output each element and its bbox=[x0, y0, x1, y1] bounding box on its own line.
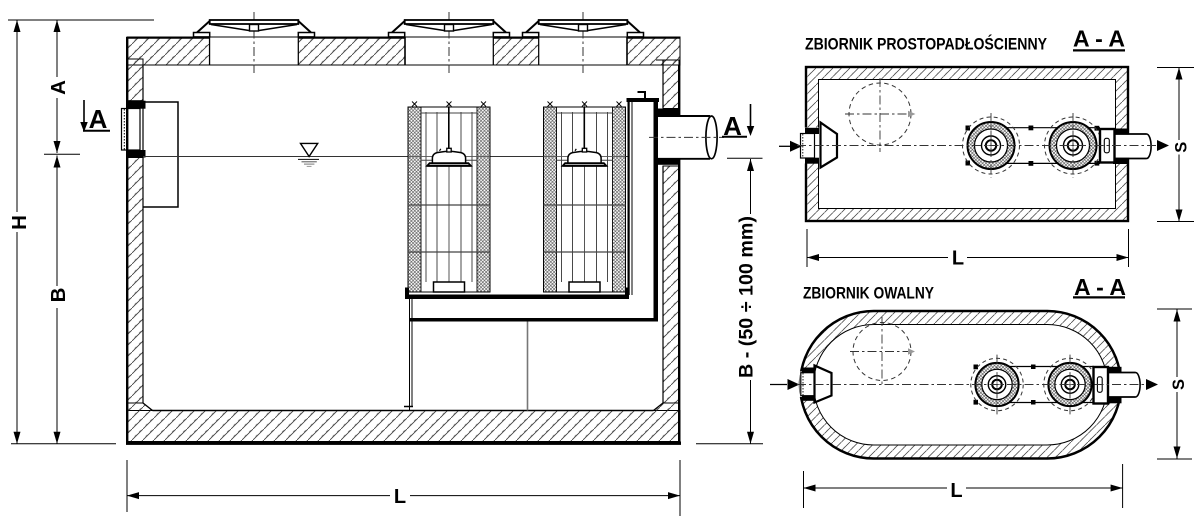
svg-text:L: L bbox=[950, 480, 962, 502]
svg-text:A - A: A - A bbox=[1074, 274, 1126, 300]
svg-text:B: B bbox=[47, 288, 70, 303]
svg-text:L: L bbox=[394, 486, 406, 508]
svg-text:A - A: A - A bbox=[1073, 26, 1125, 52]
svg-text:A: A bbox=[47, 80, 70, 95]
svg-text:S: S bbox=[1170, 379, 1188, 390]
svg-text:ZBIORNIK OWALNY: ZBIORNIK OWALNY bbox=[803, 285, 934, 303]
svg-text:H: H bbox=[8, 215, 31, 230]
svg-text:A: A bbox=[89, 104, 108, 134]
svg-text:B - (50 ÷ 100 mm): B - (50 ÷ 100 mm) bbox=[737, 216, 758, 378]
svg-text:S: S bbox=[1173, 142, 1191, 153]
svg-text:ZBIORNIK PROSTOPADŁOŚCIENNY: ZBIORNIK PROSTOPADŁOŚCIENNY bbox=[805, 34, 1047, 53]
svg-text:L: L bbox=[952, 247, 964, 269]
